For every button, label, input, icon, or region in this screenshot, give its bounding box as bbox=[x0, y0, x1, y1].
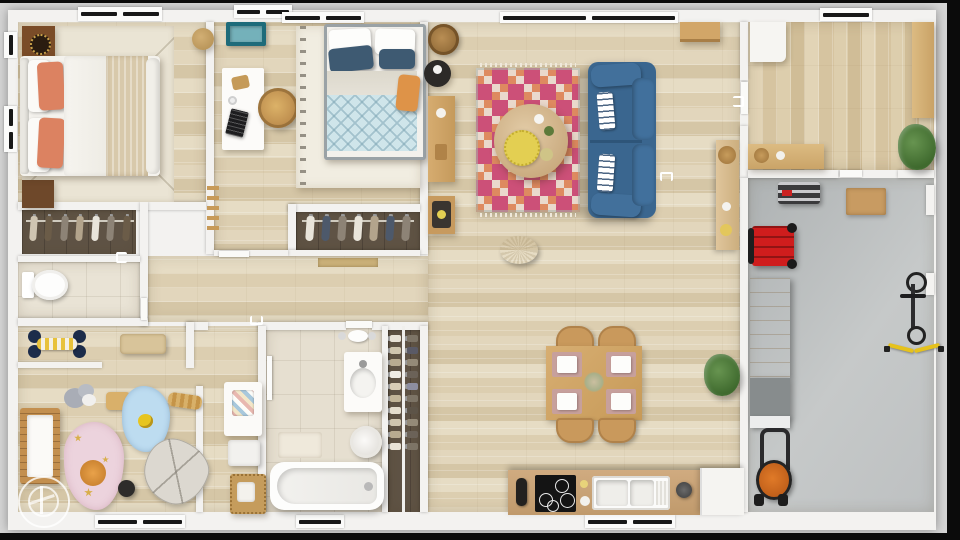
window-master-left-a bbox=[4, 32, 17, 58]
coral-pillow-2 bbox=[37, 117, 66, 168]
knit-pouf bbox=[500, 236, 538, 264]
garment bbox=[305, 216, 315, 241]
master-closet-rail bbox=[26, 216, 134, 248]
door-stop-3 bbox=[660, 172, 673, 181]
bike-wheel-front bbox=[906, 272, 927, 293]
garment bbox=[407, 335, 418, 342]
desk-cup bbox=[228, 96, 237, 105]
bed-bolster bbox=[146, 58, 160, 174]
plate bbox=[557, 356, 577, 373]
window-bathroom-bottom bbox=[296, 515, 344, 528]
console-ball-white bbox=[722, 202, 731, 211]
laundry-hamper bbox=[228, 440, 260, 466]
step-stool bbox=[778, 182, 820, 204]
drainboard bbox=[656, 481, 668, 505]
garment bbox=[385, 216, 395, 241]
watermark-logo bbox=[18, 476, 70, 528]
dining-table bbox=[546, 346, 642, 420]
garment bbox=[106, 216, 115, 241]
teal-tray bbox=[226, 22, 266, 46]
kitchen-cabinet bbox=[700, 468, 744, 515]
faucet-handle bbox=[338, 332, 346, 340]
bike-frame bbox=[911, 284, 915, 328]
entry-sideboard bbox=[748, 144, 824, 169]
kitchen-sink bbox=[592, 476, 670, 510]
wall-wardrobe-living bbox=[420, 326, 428, 512]
floorplan-render bbox=[0, 0, 960, 540]
mower-wheel bbox=[754, 494, 764, 506]
wall-closet2-bottom bbox=[288, 250, 420, 256]
garment bbox=[45, 216, 54, 241]
entry-decor bbox=[776, 151, 785, 160]
sofa-pillow-1 bbox=[596, 91, 615, 130]
window-living-top bbox=[500, 12, 678, 23]
window-kitchen-bottom bbox=[585, 515, 675, 528]
door-bedroom2 bbox=[219, 251, 249, 257]
desk-pouch bbox=[231, 74, 250, 90]
wall-closet2-left bbox=[288, 204, 296, 254]
placemat bbox=[552, 352, 582, 377]
wall-entry-garage-a bbox=[748, 170, 838, 178]
gold-star bbox=[74, 434, 82, 442]
frame-edge-bottom bbox=[0, 533, 960, 540]
pepper-mill bbox=[516, 478, 527, 506]
burner bbox=[555, 479, 569, 493]
placemat bbox=[552, 389, 582, 414]
crib bbox=[20, 408, 60, 484]
woven-basket bbox=[428, 24, 459, 55]
nursery-bench bbox=[120, 334, 166, 354]
living-bench bbox=[428, 196, 455, 234]
rattan-stool bbox=[258, 88, 298, 128]
table-flower bbox=[534, 114, 544, 124]
window-master-top bbox=[78, 7, 162, 21]
garment bbox=[390, 407, 401, 414]
sink-basin bbox=[350, 368, 376, 398]
garment bbox=[75, 216, 84, 241]
wall-entry-garage-b bbox=[898, 170, 934, 178]
blue-sofa bbox=[588, 62, 656, 218]
towel-rail bbox=[267, 356, 272, 400]
sofa-seat-split bbox=[590, 140, 642, 143]
side-table-cup bbox=[433, 65, 442, 74]
door-stop-2 bbox=[250, 316, 263, 325]
garment bbox=[390, 359, 401, 366]
garage-shelf bbox=[750, 416, 790, 428]
burner bbox=[547, 500, 559, 512]
door-stop-1 bbox=[116, 252, 127, 263]
bed2-navy-pillow-2 bbox=[379, 49, 415, 69]
sink-tap bbox=[359, 360, 367, 368]
flower-centerpiece bbox=[584, 372, 604, 392]
sofa-pillow-2 bbox=[597, 153, 616, 192]
toilet-bowl bbox=[32, 270, 68, 300]
door-garage bbox=[840, 170, 862, 177]
closet2-rail bbox=[302, 216, 414, 248]
garment bbox=[91, 216, 100, 241]
garment bbox=[407, 383, 418, 390]
wardrobe-column-left bbox=[389, 330, 402, 510]
garment bbox=[321, 216, 331, 241]
garment bbox=[407, 443, 418, 450]
gold-star bbox=[84, 488, 93, 497]
door-stop-4 bbox=[733, 96, 744, 107]
entry-basket bbox=[754, 148, 769, 163]
living-top-bench bbox=[680, 22, 720, 42]
toilet bbox=[22, 268, 68, 302]
garment bbox=[407, 395, 418, 402]
sofa-back-cushion-2 bbox=[632, 144, 654, 206]
plush-elephant bbox=[60, 382, 102, 414]
garment bbox=[407, 347, 418, 354]
garment bbox=[60, 216, 69, 241]
wall-living-entry-lower bbox=[740, 126, 748, 178]
rolled-towels bbox=[237, 482, 255, 502]
garment bbox=[401, 216, 411, 241]
bath-wall-faucet bbox=[338, 328, 376, 344]
tub-faucet bbox=[364, 482, 373, 491]
garment bbox=[337, 216, 347, 241]
lawn-mower bbox=[754, 428, 788, 508]
sink-basin-right bbox=[630, 480, 654, 506]
sink-basin-left bbox=[596, 480, 628, 506]
placemat bbox=[606, 352, 636, 377]
garment bbox=[407, 371, 418, 378]
table-coaster bbox=[540, 148, 553, 161]
bicycle bbox=[898, 272, 928, 350]
garment bbox=[390, 371, 401, 378]
blanket-ladder bbox=[207, 186, 219, 232]
cart-wheel bbox=[787, 223, 797, 233]
cart-handle bbox=[748, 228, 754, 264]
window-bed2-top-b bbox=[282, 12, 364, 23]
wall-living-entry-upper bbox=[740, 22, 748, 80]
cork-mat bbox=[846, 188, 886, 215]
roller-bar bbox=[37, 338, 77, 350]
master-bed bbox=[20, 56, 160, 176]
plate bbox=[557, 393, 577, 410]
gold-tray bbox=[504, 130, 540, 166]
faucet-handle bbox=[368, 332, 376, 340]
window-entry-top bbox=[820, 8, 872, 21]
console-ball-yellow bbox=[720, 224, 732, 236]
cooktop bbox=[535, 475, 576, 512]
garment bbox=[29, 216, 38, 241]
rug-fringe-bottom bbox=[480, 213, 576, 217]
wicker-basket bbox=[230, 474, 266, 514]
living-sideboard bbox=[428, 96, 455, 182]
laptop bbox=[225, 108, 249, 138]
wall-garage-left bbox=[740, 178, 748, 512]
speaker-cabinet bbox=[22, 26, 55, 60]
garment bbox=[407, 359, 418, 366]
coffee-table bbox=[494, 104, 568, 178]
hall-doormat bbox=[318, 258, 378, 267]
black-side-table bbox=[424, 60, 451, 87]
bath-mat bbox=[278, 432, 322, 458]
garment bbox=[407, 419, 418, 426]
changing-pad bbox=[232, 390, 254, 416]
teal-tray-inner bbox=[230, 26, 262, 42]
elephant-face bbox=[82, 394, 96, 406]
cart-wheel bbox=[787, 259, 797, 269]
window-master-left-b bbox=[4, 106, 17, 152]
toy-duck bbox=[138, 414, 153, 428]
wall-console bbox=[716, 140, 739, 250]
hallway bbox=[148, 256, 428, 322]
bench-tray bbox=[432, 201, 451, 228]
door-bathroom bbox=[346, 321, 372, 328]
console-basket bbox=[718, 146, 736, 164]
wardrobe-column-right bbox=[405, 330, 419, 510]
rug-fringe-top bbox=[480, 63, 576, 67]
plate bbox=[611, 356, 631, 373]
toy-roller bbox=[28, 330, 86, 358]
garment bbox=[390, 443, 401, 450]
garment bbox=[390, 347, 401, 354]
table-plant-ball bbox=[544, 126, 554, 136]
bathtub bbox=[270, 462, 384, 510]
placemat bbox=[606, 389, 636, 414]
changing-table bbox=[224, 382, 262, 436]
bath-hamper bbox=[350, 426, 382, 458]
door-wc bbox=[141, 298, 147, 320]
garment bbox=[390, 431, 401, 438]
wall-closet2-top bbox=[288, 204, 420, 212]
wall-hall-bottom-b bbox=[258, 322, 346, 330]
step-stool-red bbox=[782, 190, 792, 196]
garment bbox=[353, 216, 363, 241]
kitchen-jar-1 bbox=[580, 480, 588, 488]
sideboard-vase bbox=[436, 108, 446, 118]
bike-wheel-rear bbox=[907, 326, 926, 345]
frame-edge-right bbox=[947, 0, 960, 540]
bed2 bbox=[324, 24, 426, 160]
coral-pillow-1 bbox=[37, 61, 65, 110]
workbench bbox=[750, 278, 790, 378]
garment bbox=[390, 395, 401, 402]
entry-counter bbox=[912, 22, 934, 118]
sofa-back-cushion-1 bbox=[632, 78, 654, 140]
speaker-cone bbox=[30, 34, 51, 55]
black-pouf bbox=[118, 480, 135, 497]
mower-wheel bbox=[778, 494, 788, 506]
master-pouf bbox=[192, 28, 214, 50]
wall-wc-bottom bbox=[18, 318, 148, 326]
vanity-sink bbox=[344, 352, 382, 412]
plate bbox=[611, 393, 631, 410]
garment bbox=[390, 335, 401, 342]
dining-chair-br bbox=[598, 418, 636, 443]
garment bbox=[369, 216, 379, 241]
burner bbox=[560, 493, 575, 508]
garage-cabinet bbox=[750, 378, 790, 419]
bike-handlebar bbox=[900, 294, 926, 298]
dining-chair-bl bbox=[556, 418, 594, 443]
orange-pillow bbox=[395, 74, 421, 112]
garment bbox=[390, 419, 401, 426]
knit-throw bbox=[106, 56, 148, 176]
entry-plant bbox=[898, 124, 936, 170]
faucet-base bbox=[348, 330, 368, 342]
wall-nursery-stub bbox=[18, 362, 102, 368]
crib-mattress bbox=[27, 415, 53, 477]
garment bbox=[407, 407, 418, 414]
master-nightstand bbox=[22, 180, 54, 208]
gold-star bbox=[102, 456, 109, 463]
toy-basket bbox=[80, 460, 106, 486]
kitchen-faucet bbox=[676, 482, 692, 498]
entry-shoe-cabinet bbox=[750, 22, 786, 62]
tub-interior bbox=[277, 468, 377, 504]
wall-nursery-right-upper bbox=[186, 322, 194, 368]
garage-door-pilaster-1 bbox=[926, 185, 934, 215]
tray-gold-dish bbox=[437, 210, 446, 219]
strap-anchor bbox=[938, 346, 944, 352]
kitchen-jar-2 bbox=[580, 496, 590, 506]
red-tool-cart bbox=[752, 226, 794, 266]
garment bbox=[407, 431, 418, 438]
living-plant bbox=[704, 354, 740, 396]
garment bbox=[390, 383, 401, 390]
sideboard-box bbox=[435, 144, 447, 160]
garment bbox=[122, 216, 131, 241]
strap-anchor bbox=[884, 346, 890, 352]
window-nursery-bottom bbox=[95, 515, 185, 528]
frame-edge-top bbox=[0, 0, 960, 3]
bed2-navy-pillow-1 bbox=[328, 45, 374, 73]
